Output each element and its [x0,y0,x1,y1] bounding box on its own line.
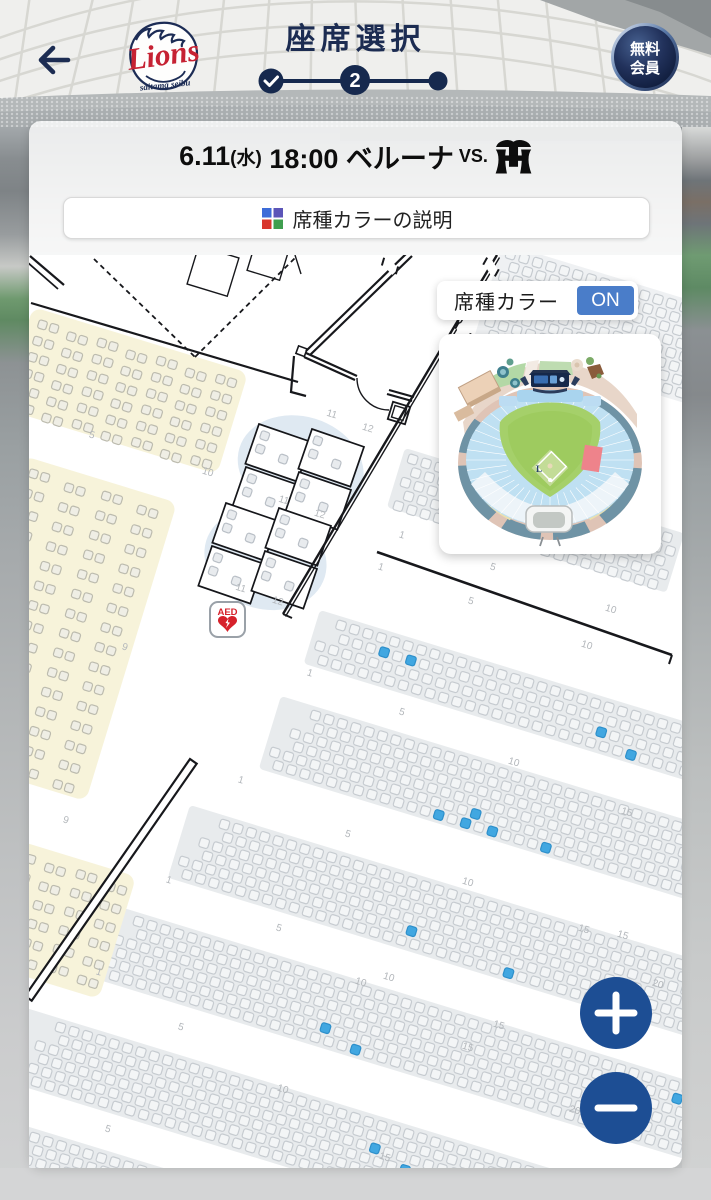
svg-text:5: 5 [466,596,475,608]
svg-text:12: 12 [361,422,375,436]
svg-text:10: 10 [382,971,396,985]
svg-text:9: 9 [61,815,70,827]
svg-text:11: 11 [325,408,339,422]
svg-text:10: 10 [604,603,618,617]
svg-text:1: 1 [397,530,406,542]
svg-text:5: 5 [176,1022,185,1034]
svg-text:AED: AED [217,607,237,618]
svg-text:L: L [536,464,542,474]
svg-text:無料: 無料 [630,40,660,58]
svg-text:1: 1 [305,668,314,680]
svg-text:5: 5 [274,923,283,935]
svg-text:5: 5 [103,1124,112,1136]
svg-text:1: 1 [376,562,385,574]
svg-text:10: 10 [201,466,215,480]
svg-text:2: 2 [349,70,360,92]
svg-text:1: 1 [236,775,245,787]
svg-text:10: 10 [461,876,475,890]
svg-text:1: 1 [164,875,173,887]
svg-text:10: 10 [580,639,594,653]
svg-text:5: 5 [343,829,352,841]
svg-text:会員: 会員 [630,59,660,77]
svg-text:5: 5 [488,562,497,574]
svg-text:5: 5 [397,707,406,719]
